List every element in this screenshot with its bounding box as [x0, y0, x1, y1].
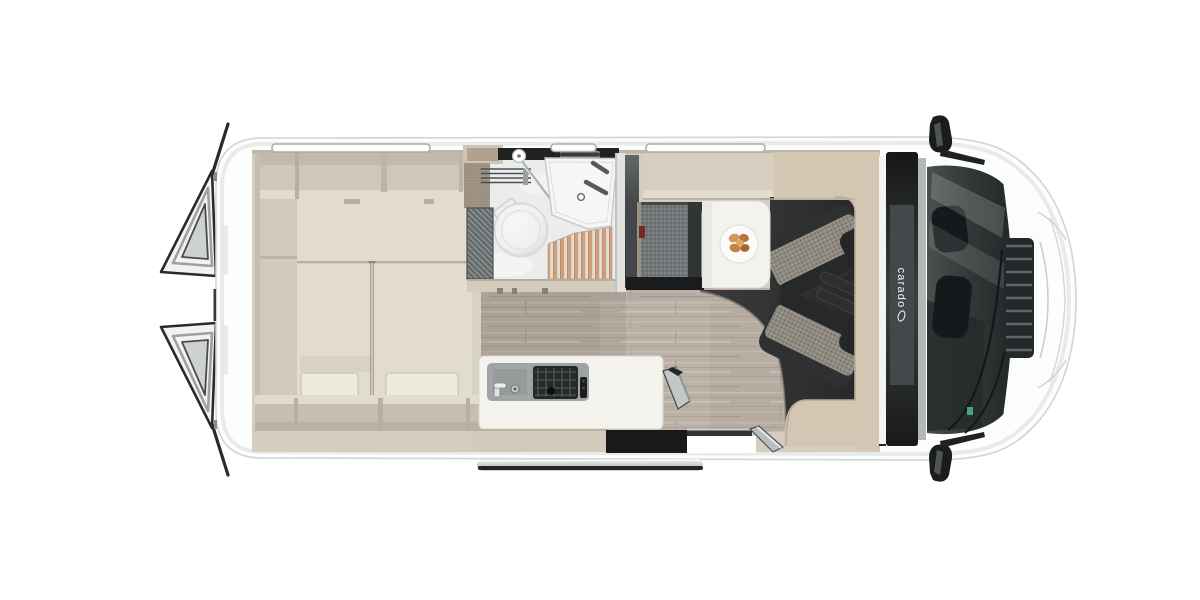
svg-text:carado: carado [895, 268, 907, 309]
